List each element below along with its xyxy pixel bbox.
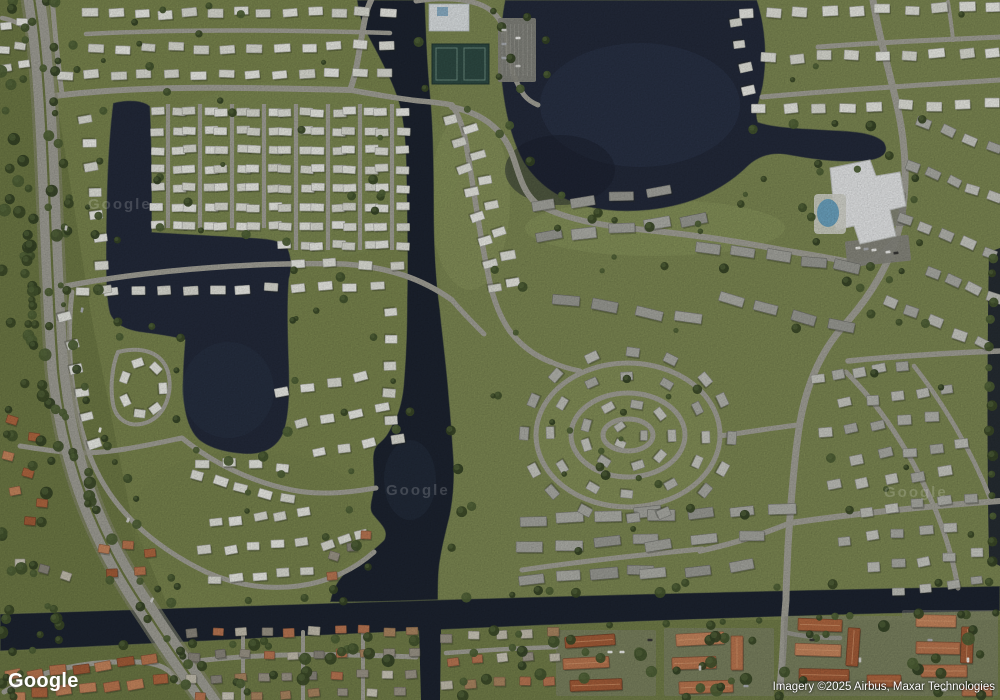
imagery-attribution: Imagery ©2025 Airbus, Maxar Technologies bbox=[773, 681, 995, 693]
satellite-imagery-canvas[interactable] bbox=[0, 0, 1000, 700]
google-logo[interactable]: Google bbox=[8, 670, 79, 693]
map-viewport[interactable]: Google Google Google Google Imagery ©202… bbox=[0, 0, 1000, 700]
